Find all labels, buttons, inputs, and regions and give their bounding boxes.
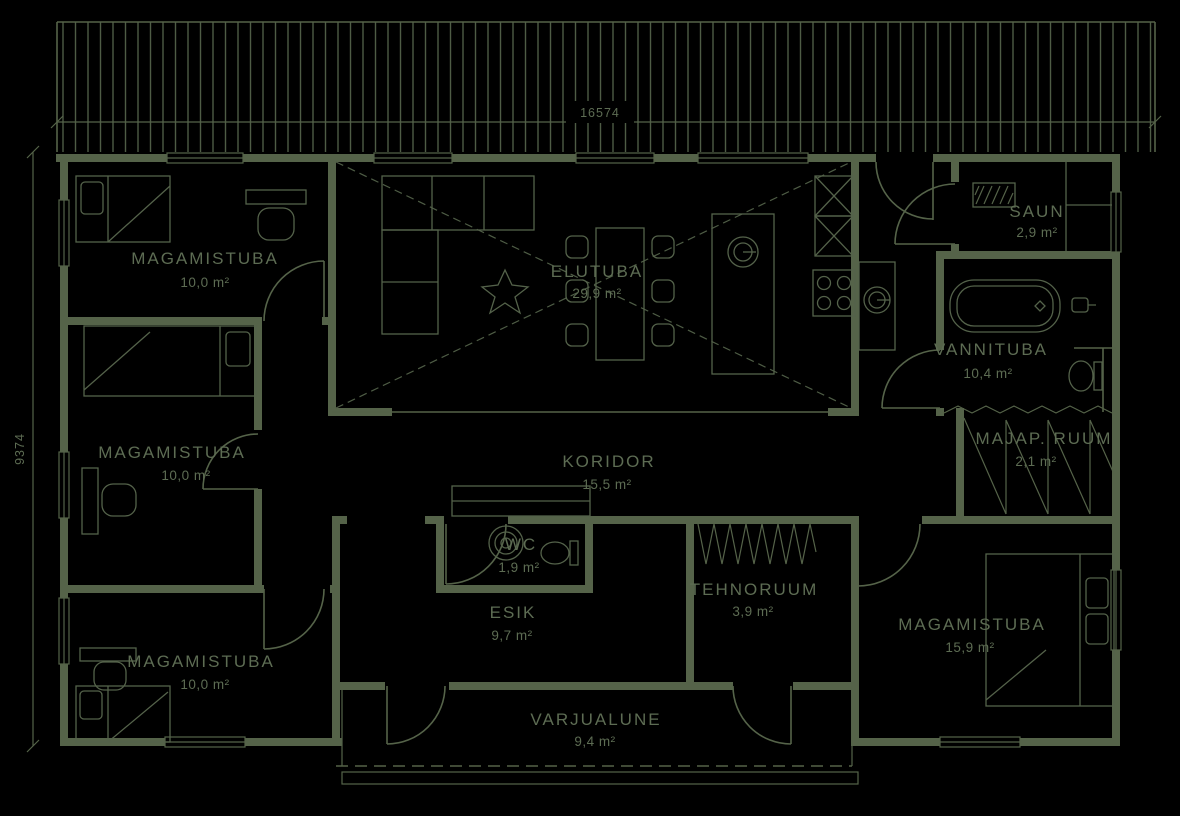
sink-icon (1072, 298, 1088, 312)
plant-icon (482, 270, 528, 313)
hall-counter-sink (859, 262, 895, 350)
bathroom-fixtures (1069, 298, 1116, 412)
window (374, 153, 452, 163)
toilet-tank (1094, 362, 1102, 390)
porch-door-left (387, 686, 445, 744)
svg-text:15,5 m²: 15,5 m² (582, 477, 631, 492)
bathroom-door (882, 350, 940, 408)
sauna-bench (1066, 158, 1112, 251)
bedroom-1-door (264, 261, 324, 321)
svg-text:KORIDOR: KORIDOR (562, 452, 655, 471)
dimension-top-value: 16574 (580, 106, 620, 120)
back-door-opening (876, 152, 933, 164)
room-label-magamistuba-1: MAGAMISTUBA 10,0 m² (131, 249, 279, 290)
svg-text:1,9 m²: 1,9 m² (498, 560, 539, 575)
window (698, 153, 808, 163)
sauna-door (895, 184, 955, 244)
svg-text:10,0 m²: 10,0 m² (180, 677, 229, 692)
window (1111, 570, 1121, 650)
floor-plan: 16574 9374 (0, 0, 1180, 816)
window (165, 737, 245, 747)
svg-text:MAGAMISTUBA: MAGAMISTUBA (127, 652, 275, 671)
svg-text:TEHNORUUM: TEHNORUUM (690, 580, 819, 599)
room-label-vannituba: VANNITUBA 10,4 m² (934, 340, 1048, 381)
porch-door-right (733, 686, 791, 744)
svg-text:SAUN: SAUN (1009, 202, 1064, 221)
bed-1 (76, 176, 170, 242)
svg-text:3,9 m²: 3,9 m² (732, 604, 773, 619)
svg-text:2,1 m²: 2,1 m² (1015, 454, 1056, 469)
svg-text:9,4 m²: 9,4 m² (574, 734, 615, 749)
toilet-icon (1069, 361, 1093, 391)
svg-text:10,0 m²: 10,0 m² (161, 468, 210, 483)
bedroom-3-door (264, 589, 324, 649)
svg-text:MAJAP. RUUM: MAJAP. RUUM (976, 429, 1113, 448)
room-label-elutuba: ELUTUBA 29,9 m² (551, 262, 643, 301)
svg-text:29,9 m²: 29,9 m² (572, 286, 621, 301)
window (59, 200, 69, 266)
window (940, 737, 1020, 747)
svg-text:VARJUALUNE: VARJUALUNE (530, 710, 661, 729)
floor-plan-canvas: 16574 9374 (0, 0, 1180, 816)
room-label-magamistuba-4: MAGAMISTUBA 15,9 m² (898, 615, 1046, 655)
room-label-majap-ruum: MAJAP. RUUM 2,1 m² (976, 429, 1113, 469)
svg-text:9,7 m²: 9,7 m² (491, 628, 532, 643)
toilet-tank (570, 541, 578, 565)
bedroom-right-door (858, 524, 920, 586)
bathtub (950, 280, 1060, 332)
roof-hatch (57, 22, 1155, 152)
desk-chair-2 (82, 468, 136, 534)
room-label-varjualune: VARJUALUNE 9,4 m² (530, 710, 661, 749)
svg-text:2,9 m²: 2,9 m² (1016, 225, 1057, 240)
bed-2 (84, 326, 256, 396)
room-label-saun: SAUN 2,9 m² (1009, 202, 1064, 240)
svg-text:MAGAMISTUBA: MAGAMISTUBA (98, 443, 246, 462)
room-label-esik: ESIK 9,7 m² (490, 603, 537, 643)
window (167, 153, 243, 163)
tehnoruum-heater (698, 524, 816, 564)
kitchen-island (712, 214, 774, 374)
dimension-left: 9374 (13, 146, 39, 752)
window (576, 153, 654, 163)
svg-text:10,0 m²: 10,0 m² (180, 275, 229, 290)
bed-3 (76, 686, 170, 742)
svg-text:MAGAMISTUBA: MAGAMISTUBA (131, 249, 279, 268)
corridor-wardrobe (452, 486, 590, 516)
bathroom-wave-boundary (944, 406, 1112, 413)
room-label-wc: WC 1,9 m² (498, 535, 539, 575)
kitchen-appliances (813, 176, 855, 316)
svg-text:MAGAMISTUBA: MAGAMISTUBA (898, 615, 1046, 634)
svg-text:15,9 m²: 15,9 m² (945, 640, 994, 655)
room-label-tehnoruum: TEHNORUUM 3,9 m² (690, 580, 819, 619)
sofa (382, 176, 534, 334)
svg-text:WC: WC (505, 535, 537, 554)
window (59, 598, 69, 664)
desk-chair-1 (246, 190, 306, 240)
window (1111, 192, 1121, 252)
svg-text:ELUTUBA: ELUTUBA (551, 262, 643, 281)
svg-text:10,4 m²: 10,4 m² (963, 366, 1012, 381)
room-label-magamistuba-2: MAGAMISTUBA 10,0 m² (98, 443, 246, 483)
wc-door (446, 524, 506, 584)
svg-text:ESIK: ESIK (490, 603, 537, 622)
svg-text:VANNITUBA: VANNITUBA (934, 340, 1048, 359)
toilet-icon (541, 542, 569, 564)
window (59, 452, 69, 518)
dimension-left-value: 9374 (13, 433, 27, 465)
cooktop-icon (813, 270, 855, 316)
